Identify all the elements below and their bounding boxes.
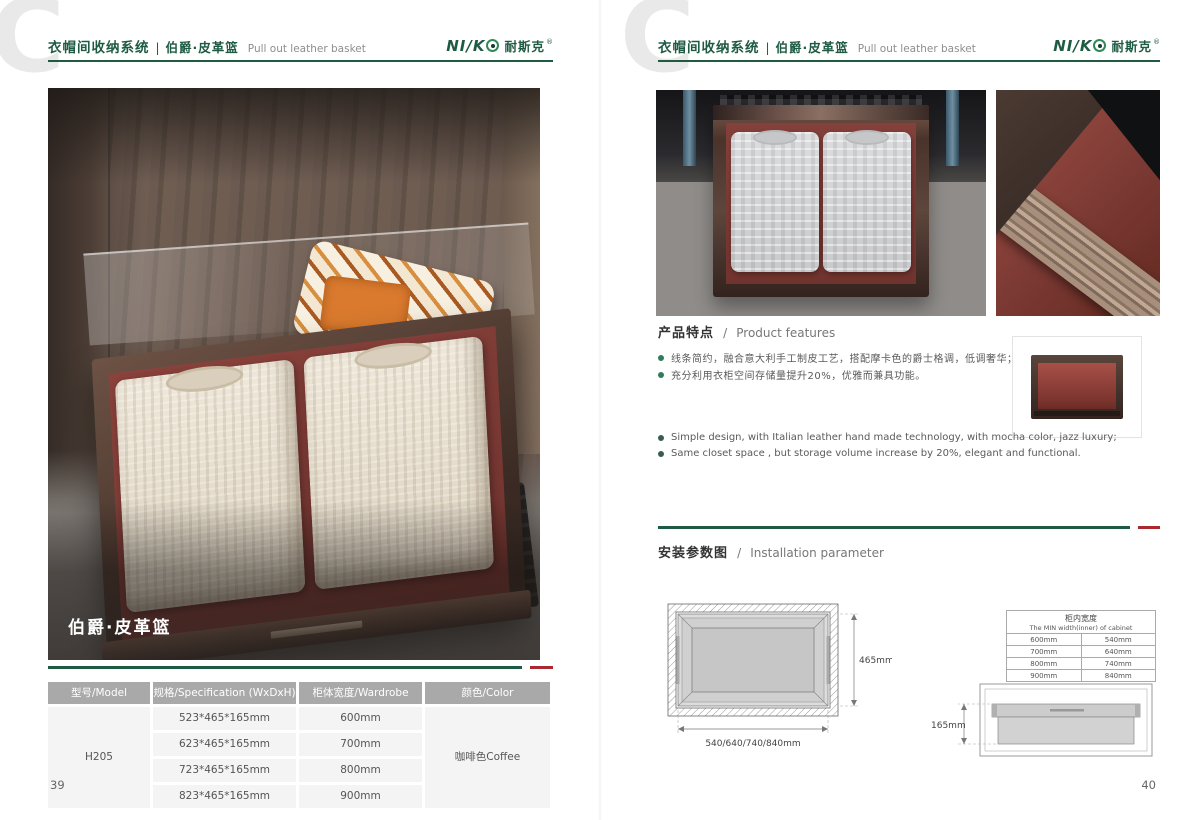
page-number: 39 [50, 778, 65, 792]
installation-front-view-diagram: 165mm [930, 678, 1160, 766]
height-dimension-label: 165mm [931, 721, 966, 731]
page-header: 衣帽间收纳系统 | 伯爵·皮革篮 Pull out leather basket [48, 36, 366, 56]
min-width-table-header: 柜内宽度 The MIN width(inner) of cabinet [1007, 611, 1156, 634]
min-inner-width-cell: 640mm [1081, 646, 1156, 658]
cabinet-width-cell: 800mm [1007, 658, 1082, 670]
page-header: 衣帽间收纳系统 | 伯爵·皮革篮 Pull out leather basket [658, 36, 976, 56]
rail-end-cap-right [1135, 704, 1140, 717]
header-system-title: 衣帽间收纳系统 [48, 36, 150, 56]
features-title-cn: 产品特点 [658, 326, 714, 341]
features-section-title: 产品特点 / Product features [658, 322, 835, 341]
photo-caption: 伯爵·皮革篮 [68, 613, 171, 638]
feature-bullet-en: Same closet space , but storage volume i… [658, 448, 1081, 459]
slide-rail-left [677, 636, 680, 684]
folded-sweater [303, 336, 494, 590]
color-cell: 咖啡色Coffee [425, 707, 550, 808]
pullout-leather-basket [92, 308, 527, 660]
bullet-dot-icon [658, 355, 664, 361]
slide-rail-right [827, 636, 830, 684]
min-width-title-en: The MIN width(inner) of cabinet [1007, 624, 1155, 632]
brand-logo: NI/K O 耐斯克 ® [1053, 36, 1160, 55]
basket-bottom-rail [1034, 411, 1120, 416]
table-row: 600mm 540mm [1007, 634, 1156, 646]
feature-text: 充分利用衣柜空间存储量提升20%，优雅而兼具功能。 [671, 367, 926, 382]
detail-photo-corner-closeup [996, 90, 1160, 316]
catalog-spread: C 衣帽间收纳系统 | 伯爵·皮革篮 Pull out leather bask… [0, 0, 1200, 820]
feature-text: Same closet space , but storage volume i… [671, 448, 1081, 459]
features-title-en: Product features [736, 326, 835, 340]
min-inner-width-cell: 740mm [1081, 658, 1156, 670]
min-inner-width-cell: 540mm [1081, 634, 1156, 646]
header-divider: | [156, 41, 160, 55]
feature-text: 线条简约，融合意大利手工制皮工艺，搭配摩卡色的爵士格调，低调奢华； [671, 350, 1018, 365]
main-product-photo: 伯爵·皮革篮 [48, 88, 540, 660]
brand-badge [271, 621, 363, 639]
column-header-width: 柜体宽度/Wardrobe width [299, 682, 422, 704]
bullet-dot-icon [658, 451, 664, 457]
basket-back-rail [713, 105, 929, 120]
spec-cell: 823*465*165mm [153, 785, 296, 808]
basket-leather-interior [1038, 363, 1116, 409]
registered-mark: ® [546, 38, 553, 46]
spec-cell: 523*465*165mm [153, 707, 296, 730]
spec-cell: 623*465*165mm [153, 733, 296, 756]
feature-bullet-en: Simple design, with Italian leather hand… [658, 432, 1117, 443]
header-series-title: 伯爵·皮革篮 [776, 37, 849, 56]
basket-inner-bottom [692, 628, 814, 692]
table-row: 800mm 740mm [1007, 658, 1156, 670]
logo-chinese: 耐斯克 [504, 36, 545, 55]
feature-text: Simple design, with Italian leather hand… [671, 432, 1117, 443]
depth-dimension-label: 465mm [859, 656, 892, 666]
logo-o-icon: O [1093, 39, 1106, 52]
features-title-separator: / [723, 326, 727, 340]
installation-section-title: 安装参数图 / Installation parameter [658, 542, 884, 561]
basket-leather-interior [726, 123, 916, 284]
brand-logo: NI/K O 耐斯克 ® [446, 36, 553, 55]
logo-text: NI/K [1053, 37, 1092, 55]
basket-body [998, 717, 1134, 744]
photo-top-shadow [48, 88, 540, 183]
installation-top-view-diagram: 465mm 540/640/740/840mm [662, 596, 892, 754]
feature-product-thumbnail [1012, 336, 1142, 438]
page-left: C 衣帽间收纳系统 | 伯爵·皮革篮 Pull out leather bask… [0, 0, 600, 820]
column-header-model: 型号/Model [48, 682, 150, 704]
folded-sweater [115, 359, 306, 613]
min-width-title-cn: 柜内宽度 [1007, 613, 1155, 624]
min-width-table: 柜内宽度 The MIN width(inner) of cabinet 600… [1006, 610, 1156, 682]
detail-photo-top-view [656, 90, 986, 316]
folded-sweater [823, 132, 911, 272]
logo-text: NI/K [446, 37, 485, 55]
width-dimension-label: 540/640/740/840mm [705, 739, 800, 749]
spec-cell: 723*465*165mm [153, 759, 296, 782]
rail-end-cap-left [992, 704, 997, 717]
bullet-dot-icon [658, 372, 664, 378]
header-subtitle-en: Pull out leather basket [858, 43, 976, 55]
section-rule [48, 666, 553, 669]
bullet-dot-icon [658, 435, 664, 441]
rule-red-segment [530, 666, 553, 669]
basket-top-view [713, 105, 929, 297]
installation-title-cn: 安装参数图 [658, 546, 728, 561]
rule-red-segment [1138, 526, 1160, 529]
registered-mark: ® [1153, 38, 1160, 46]
width-cell: 600mm [299, 707, 422, 730]
folded-sweater [731, 132, 819, 272]
header-subtitle-en: Pull out leather basket [248, 43, 366, 55]
logo-o-icon: O [486, 39, 499, 52]
cabinet-width-cell: 700mm [1007, 646, 1082, 658]
model-cell: H205 [48, 707, 150, 808]
cabinet-width-cell: 600mm [1007, 634, 1082, 646]
feature-bullet-cn: 线条简约，融合意大利手工制皮工艺，搭配摩卡色的爵士格调，低调奢华； [658, 350, 1018, 365]
header-system-title: 衣帽间收纳系统 [658, 36, 760, 56]
header-underline [48, 60, 553, 62]
metal-rail-icon [946, 90, 959, 166]
page-number: 40 [1141, 778, 1156, 792]
brand-badge [1050, 709, 1084, 712]
column-header-spec: 规格/Specification (WxDxH) [153, 682, 296, 704]
section-rule [658, 526, 1160, 529]
header-underline [658, 60, 1160, 62]
width-cell: 700mm [299, 733, 422, 756]
feature-bullet-cn: 充分利用衣柜空间存储量提升20%，优雅而兼具功能。 [658, 367, 926, 382]
specification-table: 型号/Model 规格/Specification (WxDxH) 柜体宽度/W… [48, 682, 553, 808]
empty-basket-thumbnail [1031, 355, 1123, 419]
header-divider: | [766, 41, 770, 55]
installation-title-separator: / [737, 546, 741, 560]
metal-rail-icon [683, 90, 696, 166]
table-row: 700mm 640mm [1007, 646, 1156, 658]
width-cell: 800mm [299, 759, 422, 782]
column-header-color: 颜色/Color [425, 682, 550, 704]
installation-title-en: Installation parameter [750, 546, 884, 560]
width-cell: 900mm [299, 785, 422, 808]
rule-green-segment [658, 526, 1130, 529]
page-right: C 衣帽间收纳系统 | 伯爵·皮革篮 Pull out leather bask… [600, 0, 1200, 820]
logo-chinese: 耐斯克 [1111, 36, 1152, 55]
header-series-title: 伯爵·皮革篮 [166, 37, 239, 56]
rule-green-segment [48, 666, 522, 669]
